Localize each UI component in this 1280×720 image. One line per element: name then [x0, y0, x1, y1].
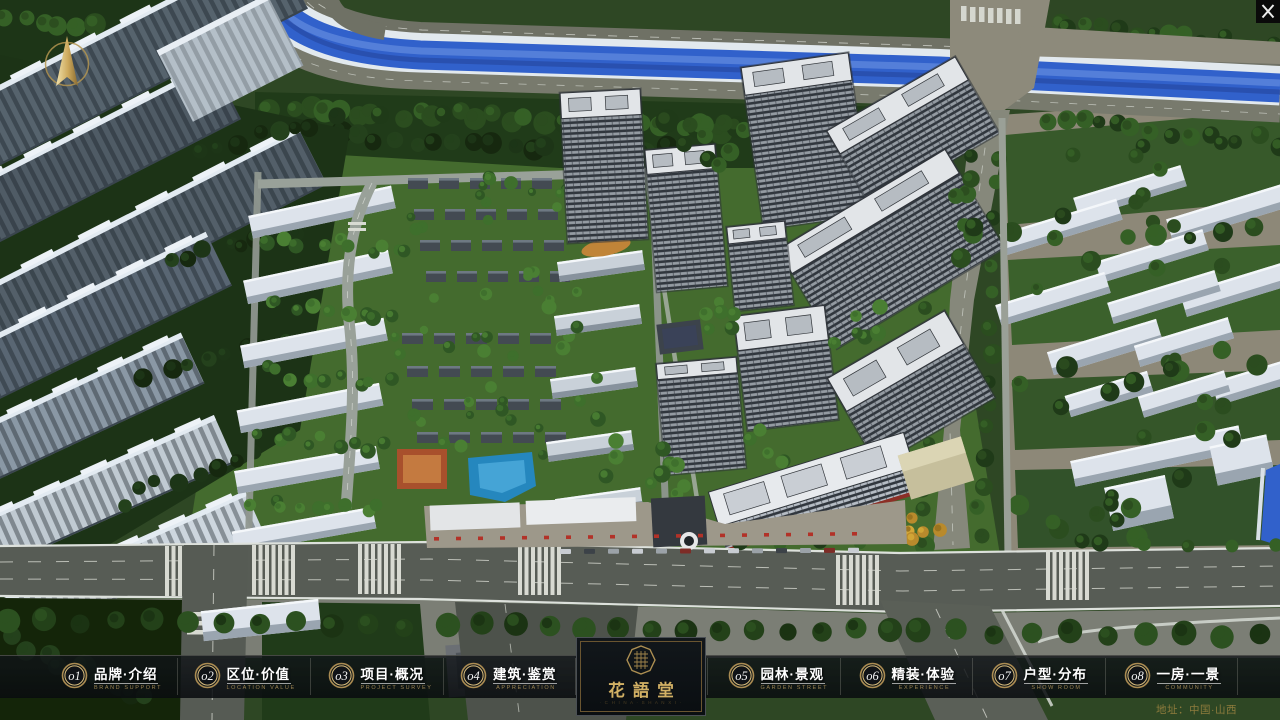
svg-text:o4: o4: [467, 669, 480, 683]
svg-text:o3: o3: [335, 669, 348, 683]
svg-text:o2: o2: [201, 669, 214, 683]
svg-text:o1: o1: [68, 669, 81, 683]
svg-text:o8: o8: [1131, 669, 1144, 683]
svg-text:o5: o5: [735, 669, 748, 683]
svg-text:o7: o7: [998, 669, 1011, 683]
svg-text:o6: o6: [866, 669, 879, 683]
